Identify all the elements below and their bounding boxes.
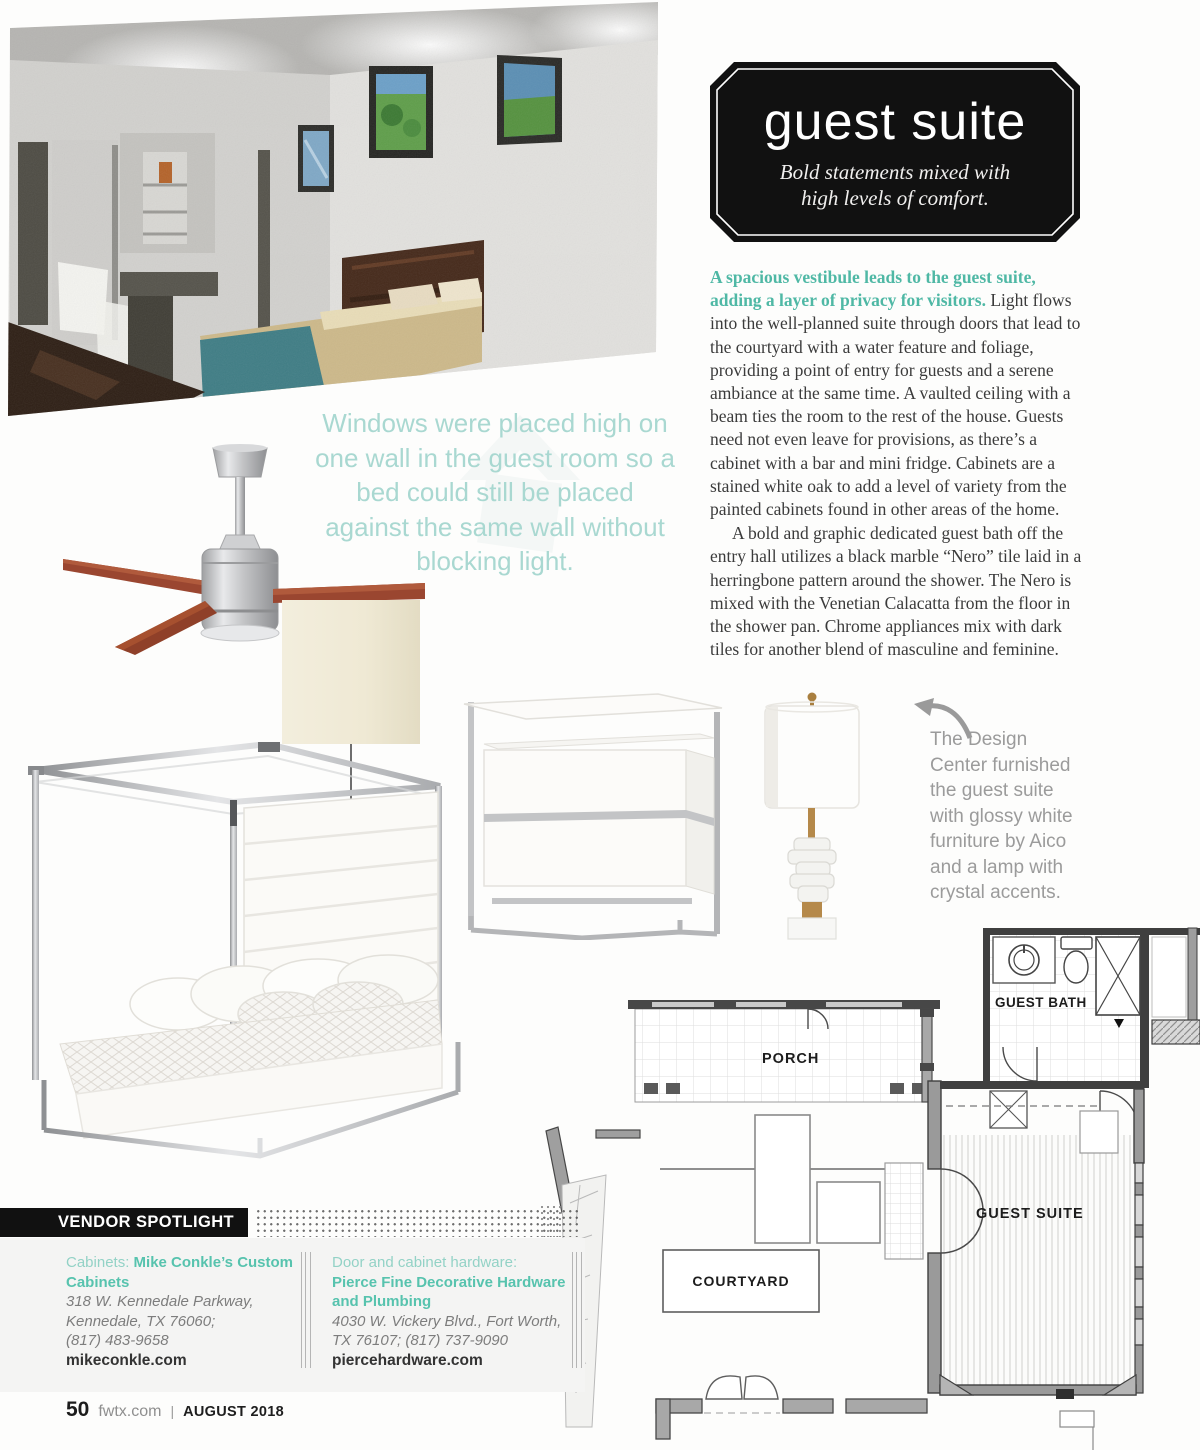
- vendor-divider: [572, 1252, 582, 1368]
- nightstand-image: [462, 686, 734, 940]
- article-paragraph-1: A spacious vestibule leads to the guest …: [710, 266, 1082, 521]
- vendor-website: piercehardware.com: [332, 1351, 567, 1371]
- plan-porch: PORCH: [628, 1000, 940, 1102]
- page-footer: 50 fwtx.com | AUGUST 2018: [66, 1398, 284, 1422]
- canopy-bed-image: [28, 742, 473, 1164]
- footer-separator: |: [170, 1403, 174, 1419]
- vendor-category: Cabinets:: [66, 1254, 134, 1271]
- plan-water-feature: [755, 1115, 810, 1243]
- badge-subtitle: Bold statements mixed with high levels o…: [710, 159, 1080, 211]
- vendor-address-line: (817) 483-9658: [66, 1331, 301, 1351]
- badge-subtitle-line2: high levels of comfort.: [710, 185, 1080, 211]
- badge-title: guest suite: [710, 92, 1080, 152]
- plan-label-guest-suite: GUEST SUITE: [976, 1206, 1084, 1222]
- vendor-card-mike-conkle: Cabinets: Mike Conkle’s Custom Cabinets …: [66, 1253, 301, 1370]
- magazine-page: guest suite Bold statements mixed with h…: [0, 0, 1200, 1450]
- bedroom-rendering-photo: [0, 0, 665, 420]
- badge-octagon-shape: [710, 62, 1080, 242]
- design-credit-caption: The Design Center furnished the guest su…: [930, 727, 1080, 906]
- vendor-banner-label: VENDOR SPOTLIGHT: [58, 1213, 234, 1232]
- plan-courtyard: COURTYARD: [656, 1115, 927, 1439]
- vendor-category: Door and cabinet hardware:: [332, 1254, 517, 1271]
- table-lamp-image: [750, 690, 874, 940]
- vendor-address-line: Kennedale, TX 76060;: [66, 1312, 301, 1332]
- vendor-spotlight-banner: VENDOR SPOTLIGHT: [0, 1208, 248, 1237]
- plan-guest-bath: GUEST BATH: [983, 928, 1200, 1088]
- vendor-name-line: Cabinets: Mike Conkle’s Custom Cabinets: [66, 1253, 301, 1292]
- plan-label-courtyard: COURTYARD: [692, 1273, 789, 1289]
- plan-label-guest-bath: GUEST BATH: [995, 995, 1087, 1010]
- vendor-card-pierce-hardware: Door and cabinet hardware: Pierce Fine D…: [332, 1253, 567, 1370]
- vendor-address-line: TX 76107; (817) 737-9090: [332, 1331, 567, 1351]
- article-paragraph-2: A bold and graphic dedicated guest bath …: [710, 522, 1082, 661]
- article-body: A spacious vestibule leads to the guest …: [710, 266, 1082, 661]
- plan-guest-suite: GUEST SUITE: [928, 1081, 1144, 1450]
- footer-page-number: 50: [66, 1398, 89, 1422]
- plan-label-porch: PORCH: [762, 1051, 819, 1067]
- badge-subtitle-line1: Bold statements mixed with: [710, 159, 1080, 185]
- halftone-pattern: [255, 1208, 580, 1237]
- vendor-address-line: 4030 W. Vickery Blvd., Fort Worth,: [332, 1312, 567, 1332]
- guest-suite-badge: guest suite Bold statements mixed with h…: [710, 62, 1080, 242]
- vendor-address-line: 318 W. Kennedale Parkway,: [66, 1292, 301, 1312]
- article-paragraph-1-text: Light flows into the well-planned suite …: [710, 290, 1080, 519]
- vendor-website: mikeconkle.com: [66, 1351, 301, 1371]
- vendor-name: Pierce Fine Decorative Hardware and Plum…: [332, 1274, 565, 1311]
- footer-site: fwtx.com: [98, 1403, 161, 1421]
- footer-issue: AUGUST 2018: [183, 1404, 284, 1420]
- vendor-name-line: Door and cabinet hardware: Pierce Fine D…: [332, 1253, 567, 1312]
- vendor-divider: [301, 1252, 311, 1368]
- floor-plan: PORCH COURTYARD: [540, 923, 1200, 1450]
